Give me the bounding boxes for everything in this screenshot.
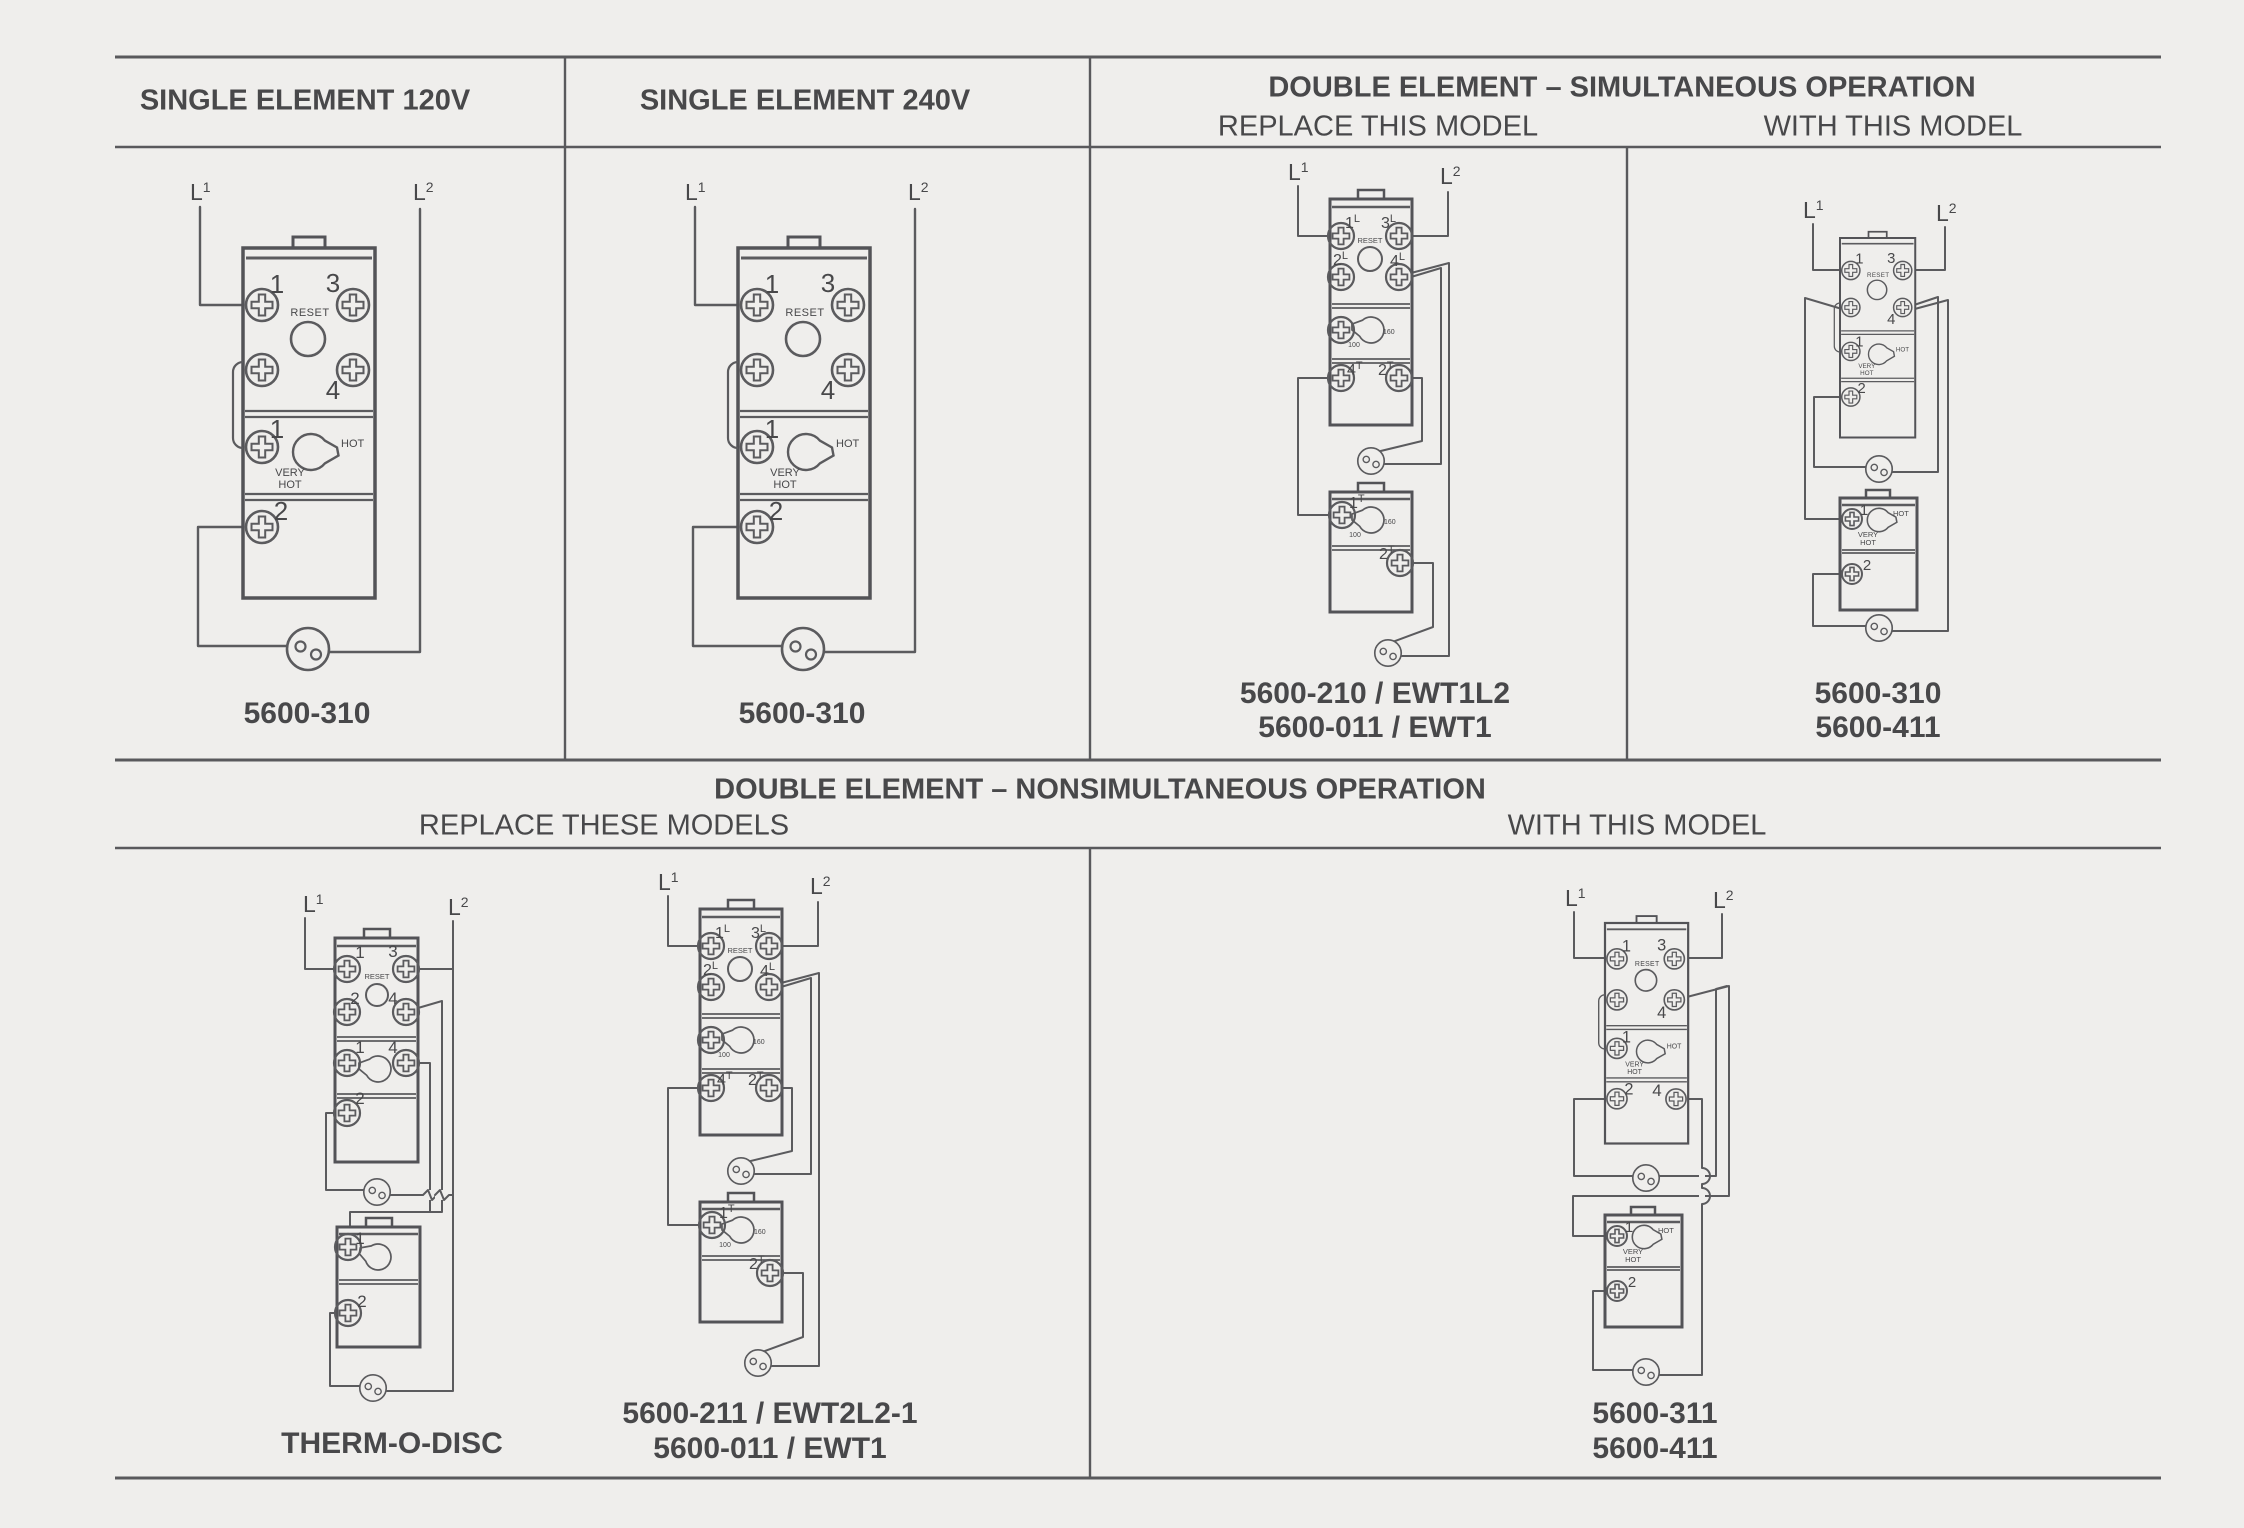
heating-element-lower [360, 1375, 386, 1401]
diagram-single-element-120v: L1 L2 [190, 179, 434, 670]
diagram-nonsimultaneous-with: L1 L2 4 [1565, 885, 1734, 1385]
model-label-sim-with-2: 5600-411 [1815, 711, 1940, 745]
heating-element-upper [1358, 448, 1384, 474]
heating-element-lower [1866, 615, 1892, 641]
model-label-sim-with-1: 5600-310 [1815, 677, 1942, 711]
wire-l2 [1412, 192, 1448, 236]
wire-l1 [305, 918, 337, 969]
wire-l1 [200, 207, 245, 305]
subheader-replace-this-model: REPLACE THIS MODEL [1218, 111, 1538, 144]
subheader-with-this-model: WITH THIS MODEL [1764, 111, 2023, 144]
heating-element-upper [1866, 456, 1892, 482]
line1-label: L1 [1803, 197, 1824, 223]
wiring-diagrams-layer: 1 3 4 RESET 1 HOT VERY HOT 2 1L 3 [0, 0, 2244, 1528]
model-label-sim-replace-2: 5600-011 / EWT1 [1258, 711, 1491, 745]
line2-label: L2 [448, 894, 469, 920]
model-label-thermodisc: THERM-O-DISC [281, 1427, 503, 1461]
thermostat-replacement-chart: 1 3 4 RESET 1 HOT VERY HOT 2 1L 3 [0, 0, 2244, 1528]
line1-label: L1 [1565, 885, 1586, 911]
model-label-nonsim-replace-1: 5600-211 / EWT2L2-1 [622, 1397, 917, 1431]
wire-l1 [1574, 912, 1608, 958]
line1-label: L1 [303, 891, 324, 917]
heating-element-upper [1633, 1165, 1659, 1191]
diagram-thermodisc: L1 L2 [303, 891, 469, 1401]
header-single-120: SINGLE ELEMENT 120V [140, 85, 470, 118]
line1-label: L1 [190, 179, 211, 205]
subheader-with-this-model-bottom: WITH THIS MODEL [1508, 810, 1767, 843]
terminal-4-label: 4 [1652, 1081, 1661, 1100]
wire-2-lower1 [1805, 298, 1844, 519]
subheader-replace-these-models: REPLACE THESE MODELS [419, 810, 789, 843]
heating-element-upper [364, 1179, 390, 1205]
line2-label: L2 [1713, 887, 1734, 913]
line2-label: L2 [413, 179, 434, 205]
wire-l2 [1684, 914, 1722, 958]
model-label-single-240: 5600-310 [739, 697, 866, 731]
diagram-nonsimultaneous-replace-b [658, 869, 831, 1376]
heating-element [287, 628, 329, 670]
heating-element-lower [1633, 1359, 1659, 1385]
diagram-simultaneous-with: L1 L2 [1803, 197, 1957, 641]
heating-element-lower [1375, 640, 1401, 666]
wire-l1 [1813, 224, 1843, 270]
model-label-single-120: 5600-310 [244, 697, 371, 731]
wire-l1 [1298, 186, 1330, 236]
diagram-single-element-240v [685, 179, 929, 670]
line2-label: L2 [1936, 200, 1957, 226]
header-double-simultaneous: DOUBLE ELEMENT – SIMULTANEOUS OPERATION [1268, 72, 1975, 105]
model-label-nonsim-with-2: 5600-411 [1592, 1432, 1717, 1466]
line2-label: L2 [1440, 163, 1461, 189]
line1-label: L1 [1288, 159, 1309, 185]
header-double-nonsimultaneous: DOUBLE ELEMENT – NONSIMULTANEOUS OPERATI… [714, 774, 1486, 807]
diagram-simultaneous-replace: L1 L2 [1288, 159, 1461, 666]
wire-4t-1t [1298, 378, 1330, 515]
model-label-nonsim-with-1: 5600-311 [1592, 1397, 1717, 1431]
model-label-sim-replace-1: 5600-210 / EWT1L2 [1240, 677, 1510, 711]
model-label-nonsim-replace-2: 5600-011 / EWT1 [653, 1432, 886, 1466]
header-single-240: SINGLE ELEMENT 240V [640, 85, 970, 118]
